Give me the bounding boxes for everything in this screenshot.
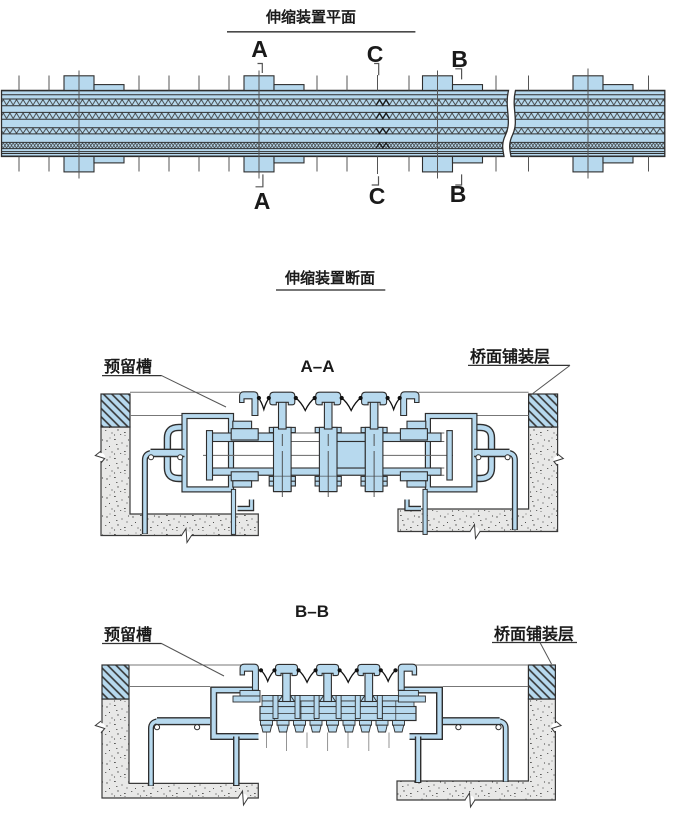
- svg-text:预留槽: 预留槽: [104, 357, 152, 376]
- svg-text:预留槽: 预留槽: [104, 625, 152, 644]
- svg-text:A: A: [254, 188, 271, 214]
- svg-text:A: A: [251, 36, 268, 62]
- svg-text:伸缩装置断面: 伸缩装置断面: [284, 269, 375, 287]
- svg-text:C: C: [369, 183, 386, 209]
- svg-text:B: B: [450, 181, 467, 207]
- svg-text:B–B: B–B: [295, 602, 329, 621]
- svg-text:A–A: A–A: [300, 357, 334, 376]
- svg-text:B: B: [451, 46, 468, 72]
- svg-text:桥面铺装层: 桥面铺装层: [494, 625, 574, 644]
- svg-text:伸缩装置平面: 伸缩装置平面: [265, 8, 356, 26]
- svg-text:桥面铺装层: 桥面铺装层: [470, 347, 550, 366]
